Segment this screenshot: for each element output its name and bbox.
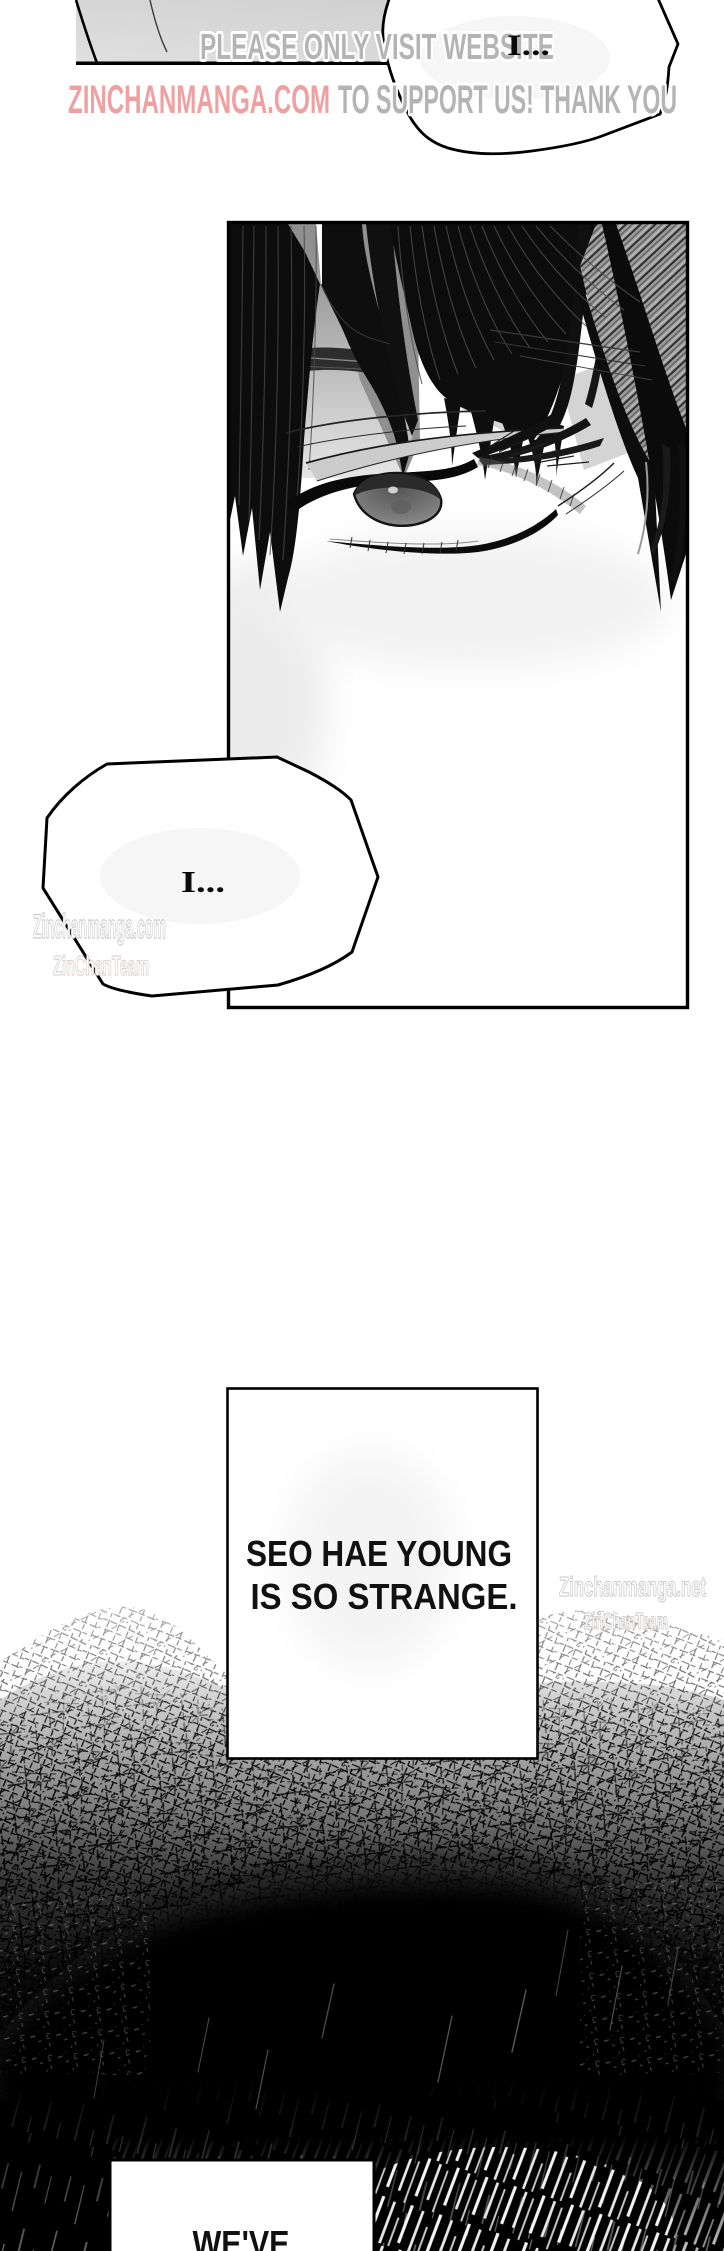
svg-text:TO SUPPORT US! THANK YOU: TO SUPPORT US! THANK YOU xyxy=(338,78,677,122)
svg-text:I...: I... xyxy=(181,864,225,899)
svg-text:I...: I... xyxy=(507,29,550,62)
svg-text:Zinchanmanga.com: Zinchanmanga.com xyxy=(33,908,166,946)
svg-text:SEO HAE YOUNG: SEO HAE YOUNG xyxy=(246,1533,512,1574)
svg-text:WE'VE: WE'VE xyxy=(193,2223,290,2251)
svg-text:Zinchanmanga.net: Zinchanmanga.net xyxy=(559,1571,706,1602)
svg-text:ZinChanTeam: ZinChanTeam xyxy=(53,950,149,981)
svg-text:PLEASE ONLY VISIT WEBSITE: PLEASE ONLY VISIT WEBSITE xyxy=(200,26,554,67)
svg-text:ZinChanTeam: ZinChanTeam xyxy=(584,1608,668,1634)
svg-text:ZINCHANMANGA.COM: ZINCHANMANGA.COM xyxy=(68,78,330,122)
svg-text:IS SO STRANGE.: IS SO STRANGE. xyxy=(251,1576,518,1617)
